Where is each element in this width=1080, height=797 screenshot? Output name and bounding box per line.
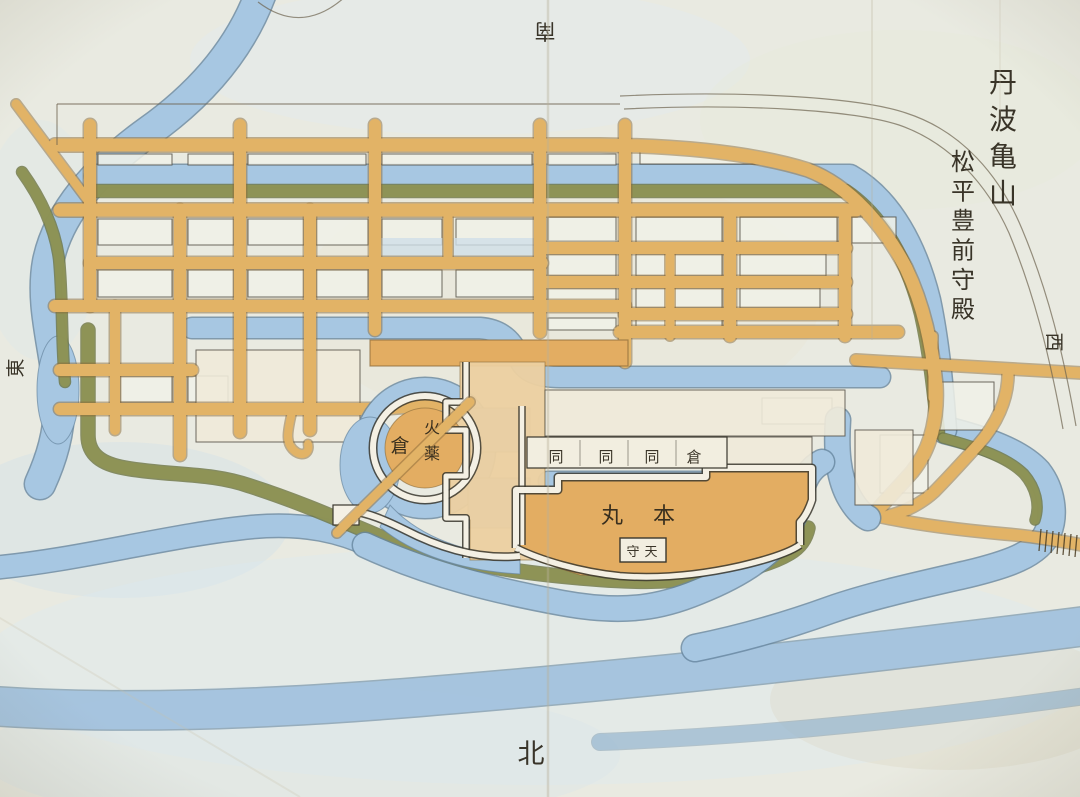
map-canvas: 丹波亀山 松平豊前守殿 南 北 東 西 火薬 倉 同 同 同 倉 丸 本 守 天 [0,0,1080,797]
map-page: 丹波亀山 松平豊前守殿 南 北 東 西 火薬 倉 同 同 同 倉 丸 本 守 天 [0,0,1080,797]
edge-vignette [0,0,1080,797]
